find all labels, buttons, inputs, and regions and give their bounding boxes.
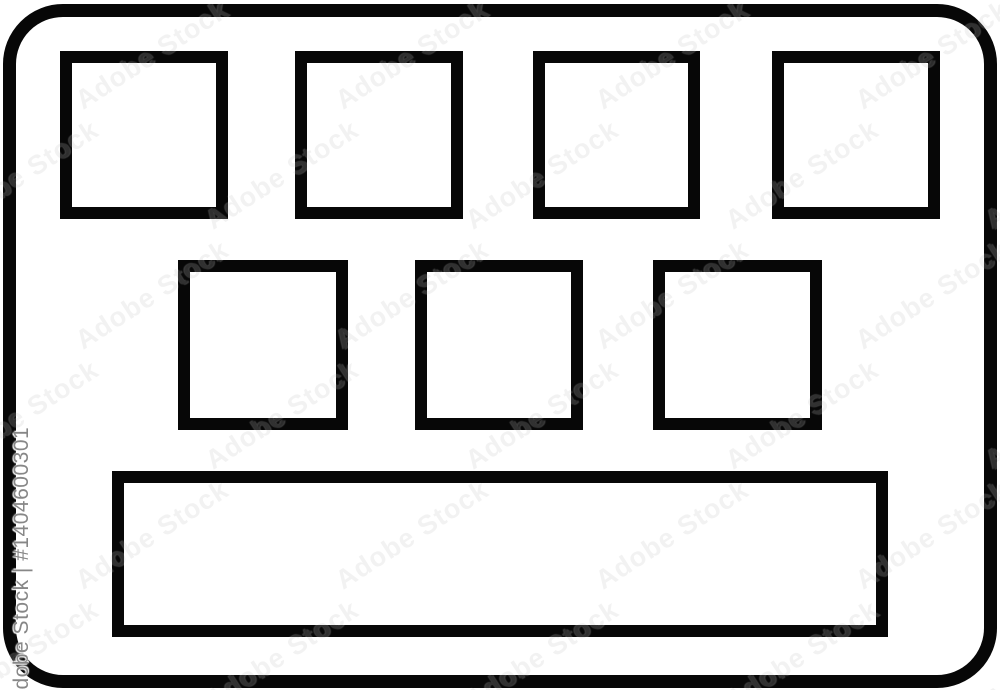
key-top-row-4	[772, 51, 940, 219]
key-middle-row-1	[178, 260, 348, 430]
keyboard-icon	[0, 0, 1000, 690]
key-top-row-2	[295, 51, 463, 219]
key-middle-row-3	[653, 260, 822, 430]
key-top-row-3	[533, 51, 700, 219]
stock-image-canvas: Adobe StockAdobe StockAdobe StockAdobe S…	[0, 0, 1000, 690]
key-top-row-1	[60, 51, 228, 219]
key-middle-row-2	[415, 260, 583, 430]
spacebar-key	[112, 471, 888, 637]
